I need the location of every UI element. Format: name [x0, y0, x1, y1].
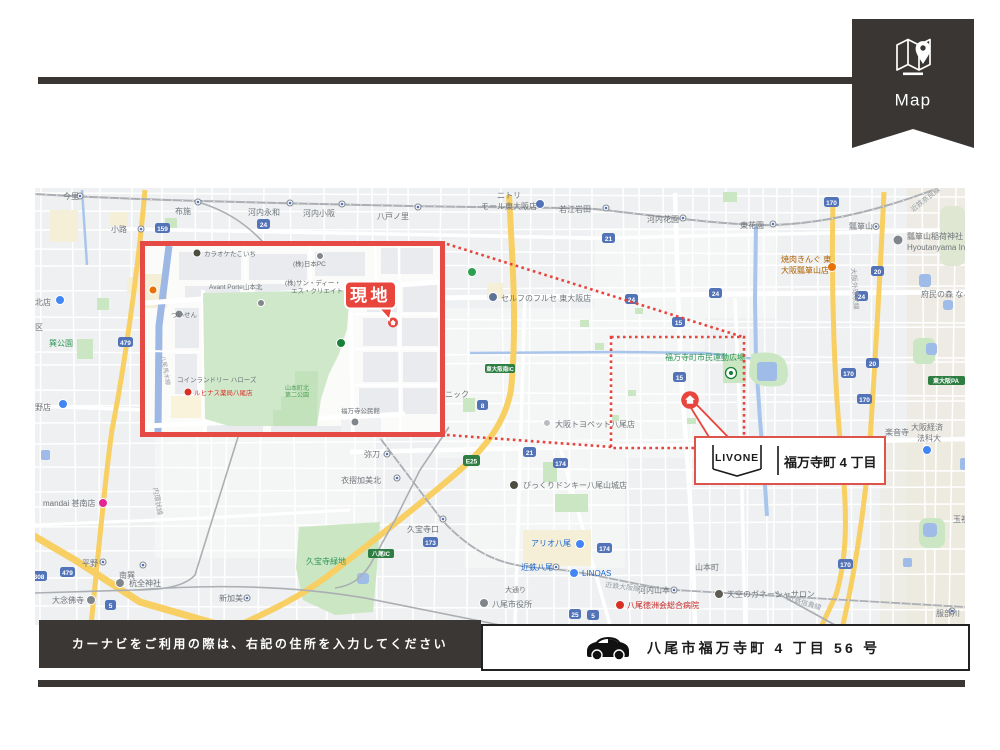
svg-text:24: 24 [260, 222, 268, 229]
svg-text:福万寺公民館: 福万寺公民館 [341, 406, 381, 415]
svg-text:15: 15 [676, 375, 684, 382]
svg-text:河内花園: 河内花園 [647, 214, 679, 224]
svg-text:20: 20 [874, 269, 882, 276]
svg-text:今里: 今里 [63, 191, 79, 201]
svg-text:5: 5 [591, 613, 595, 620]
svg-text:8: 8 [481, 403, 485, 410]
svg-text:天空のガネーシャサロン: 天空のガネーシャサロン [727, 589, 815, 599]
svg-text:LINOAS: LINOAS [582, 569, 611, 578]
svg-text:新加美: 新加美 [219, 593, 243, 603]
svg-text:平野: 平野 [82, 559, 98, 568]
svg-text:山本町: 山本町 [695, 562, 719, 572]
svg-text:カラオケたこいち: カラオケたこいち [204, 250, 256, 258]
svg-text:河内小阪: 河内小阪 [303, 208, 335, 218]
svg-text:びっくりドンキー八尾山城店: びっくりドンキー八尾山城店 [523, 480, 627, 490]
svg-text:八戸ノ里: 八戸ノ里 [377, 212, 409, 221]
svg-text:159: 159 [157, 226, 168, 233]
svg-text:479: 479 [120, 340, 131, 347]
svg-text:服部川: 服部川 [936, 608, 960, 618]
svg-text:衣摺加美北: 衣摺加美北 [341, 475, 381, 485]
svg-text:杭全神社: 杭全神社 [129, 578, 161, 588]
svg-text:15: 15 [675, 320, 683, 327]
svg-text:5: 5 [109, 603, 113, 610]
svg-text:野店: 野店 [35, 402, 51, 412]
svg-text:東花園: 東花園 [740, 220, 764, 230]
svg-text:布施: 布施 [175, 206, 191, 216]
svg-text:Hyoutanyama Inari: Hyoutanyama Inari [907, 243, 965, 252]
svg-text:174: 174 [555, 461, 566, 468]
svg-text:170: 170 [826, 200, 837, 207]
svg-text:区: 区 [35, 323, 43, 332]
svg-text:河内山本: 河内山本 [638, 585, 670, 595]
svg-text:24: 24 [712, 291, 720, 298]
svg-text:エス・クリエイト: エス・クリエイト [291, 287, 343, 295]
svg-text:E25: E25 [466, 459, 478, 466]
svg-text:モール東大阪店: モール東大阪店 [481, 201, 537, 211]
svg-text:巽公園: 巽公園 [49, 339, 73, 348]
svg-text:現地: 現地 [350, 285, 391, 305]
svg-text:楽音寺: 楽音寺 [885, 427, 909, 437]
svg-text:八尾IC: 八尾IC [371, 550, 391, 558]
svg-text:焼肉きんぐ 東: 焼肉きんぐ 東 [781, 254, 831, 264]
svg-text:308: 308 [35, 574, 45, 581]
svg-text:大阪経済: 大阪経済 [911, 422, 943, 432]
svg-text:21: 21 [526, 450, 534, 457]
svg-text:アリオ八尾: アリオ八尾 [531, 539, 571, 548]
svg-text:瓢箪山: 瓢箪山 [849, 221, 873, 231]
svg-text:府民の森 なるか: 府民の森 なるか [921, 289, 965, 299]
svg-text:大通り: 大通り [505, 585, 526, 594]
svg-text:東大阪南IC: 東大阪南IC [486, 365, 514, 373]
svg-text:玉祖: 玉祖 [953, 514, 965, 524]
svg-text:170: 170 [840, 562, 851, 569]
svg-text:第二公園: 第二公園 [285, 391, 309, 399]
svg-text:河内永和: 河内永和 [248, 207, 280, 217]
svg-text:八尾徳洲会総合病院: 八尾徳洲会総合病院 [627, 600, 699, 610]
svg-text:コインランドリー ハローズ: コインランドリー ハローズ [177, 375, 257, 384]
svg-text:20: 20 [869, 361, 877, 368]
svg-text:174: 174 [599, 546, 610, 553]
svg-text:mandai 甚南店: mandai 甚南店 [43, 498, 95, 508]
svg-text:170: 170 [859, 397, 870, 404]
svg-text:近鉄八尾: 近鉄八尾 [521, 562, 553, 572]
svg-text:福万寺町市民運動広場: 福万寺町市民運動広場 [665, 352, 745, 362]
svg-text:山本町北: 山本町北 [285, 384, 309, 392]
svg-text:LIVONE: LIVONE [715, 452, 759, 464]
svg-text:(株)日本PC: (株)日本PC [293, 259, 326, 268]
svg-text:小路: 小路 [111, 224, 127, 234]
svg-text:ニック: ニック [445, 390, 469, 399]
svg-text:(株)サン・ディー・: (株)サン・ディー・ [285, 278, 341, 287]
svg-text:東大阪PA: 東大阪PA [933, 377, 960, 385]
svg-text:瓢箪山稲荷神社: 瓢箪山稲荷神社 [907, 231, 963, 241]
svg-text:Map: Map [895, 91, 932, 110]
svg-text:八尾市役所: 八尾市役所 [492, 599, 532, 609]
svg-text:久宝寺口: 久宝寺口 [407, 524, 439, 534]
svg-text:25: 25 [571, 612, 579, 619]
svg-text:大阪トヨペット八尾店: 大阪トヨペット八尾店 [555, 419, 635, 429]
svg-text:北店: 北店 [35, 297, 51, 307]
svg-text:ルヒナス薬局八尾店: ルヒナス薬局八尾店 [194, 388, 253, 397]
svg-text:セルフのフルセ 東大阪店: セルフのフルセ 東大阪店 [501, 293, 591, 303]
svg-text:21: 21 [605, 236, 613, 243]
svg-text:大阪瓢箪山店: 大阪瓢箪山店 [781, 265, 829, 275]
svg-text:法科大: 法科大 [917, 433, 941, 443]
svg-text:大念佛寺: 大念佛寺 [52, 595, 84, 605]
svg-text:ついせん: ついせん [171, 311, 198, 319]
svg-text:Avant Porte山本北: Avant Porte山本北 [209, 282, 263, 291]
svg-text:久宝寺緑地: 久宝寺緑地 [306, 556, 346, 566]
svg-text:弥刀: 弥刀 [364, 449, 380, 459]
svg-text:479: 479 [62, 570, 73, 577]
svg-text:173: 173 [425, 540, 436, 547]
svg-text:ニトリ: ニトリ [497, 191, 521, 200]
svg-text:若江岩田: 若江岩田 [559, 204, 591, 214]
svg-text:170: 170 [843, 371, 854, 378]
